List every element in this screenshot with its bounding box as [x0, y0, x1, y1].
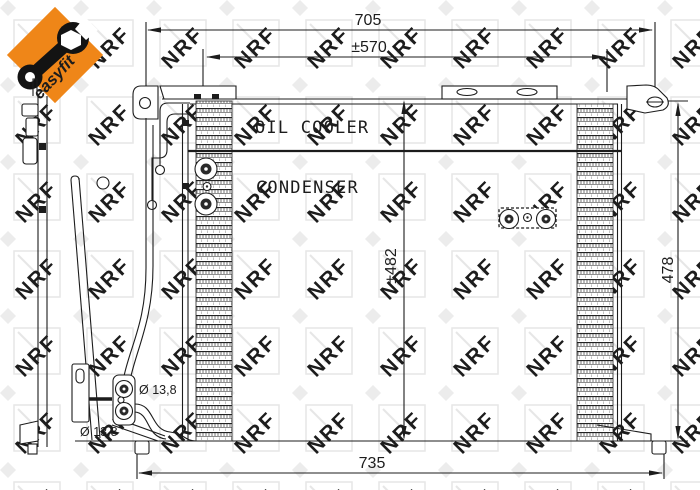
oil-cooler-label: OIL COOLER [255, 118, 369, 138]
dim-570-label: ±570 [351, 39, 387, 56]
condenser-label: CONDENSER [256, 178, 359, 198]
port-diameter-label-bottom: Ø 13,8 [80, 425, 118, 439]
dim-735-label: 735 [359, 455, 386, 472]
dim-482-label: ±482 [383, 248, 400, 284]
dim-705-label: 705 [355, 12, 382, 29]
condenser-technical-drawing: NRF easyfit 705 [0, 0, 700, 490]
foot-left [135, 441, 149, 454]
foot-right [652, 441, 666, 454]
dim-478-label: 478 [660, 257, 677, 284]
right-fin-stack [577, 104, 613, 441]
service-port-block [499, 208, 556, 229]
port-diameter-label-top: Ø 13,8 [139, 383, 177, 397]
